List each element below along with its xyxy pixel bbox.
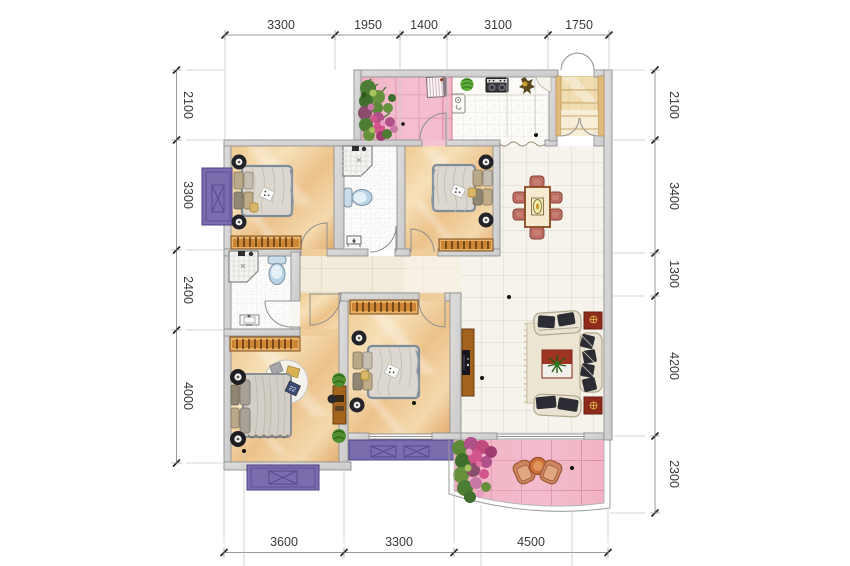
svg-text:1950: 1950 [354, 18, 382, 32]
svg-text:1300: 1300 [667, 260, 681, 288]
svg-text:2400: 2400 [181, 276, 195, 304]
svg-text:3400: 3400 [667, 182, 681, 210]
svg-text:3600: 3600 [270, 535, 298, 549]
svg-text:4200: 4200 [667, 352, 681, 380]
svg-text:2100: 2100 [181, 91, 195, 119]
svg-text:4000: 4000 [181, 382, 195, 410]
svg-text:3300: 3300 [385, 535, 413, 549]
svg-text:3300: 3300 [267, 18, 295, 32]
svg-text:4500: 4500 [517, 535, 545, 549]
svg-text:1400: 1400 [410, 18, 438, 32]
svg-text:3100: 3100 [484, 18, 512, 32]
svg-text:3300: 3300 [181, 181, 195, 209]
svg-text:2100: 2100 [667, 91, 681, 119]
svg-text:2300: 2300 [667, 460, 681, 488]
svg-text:1750: 1750 [565, 18, 593, 32]
